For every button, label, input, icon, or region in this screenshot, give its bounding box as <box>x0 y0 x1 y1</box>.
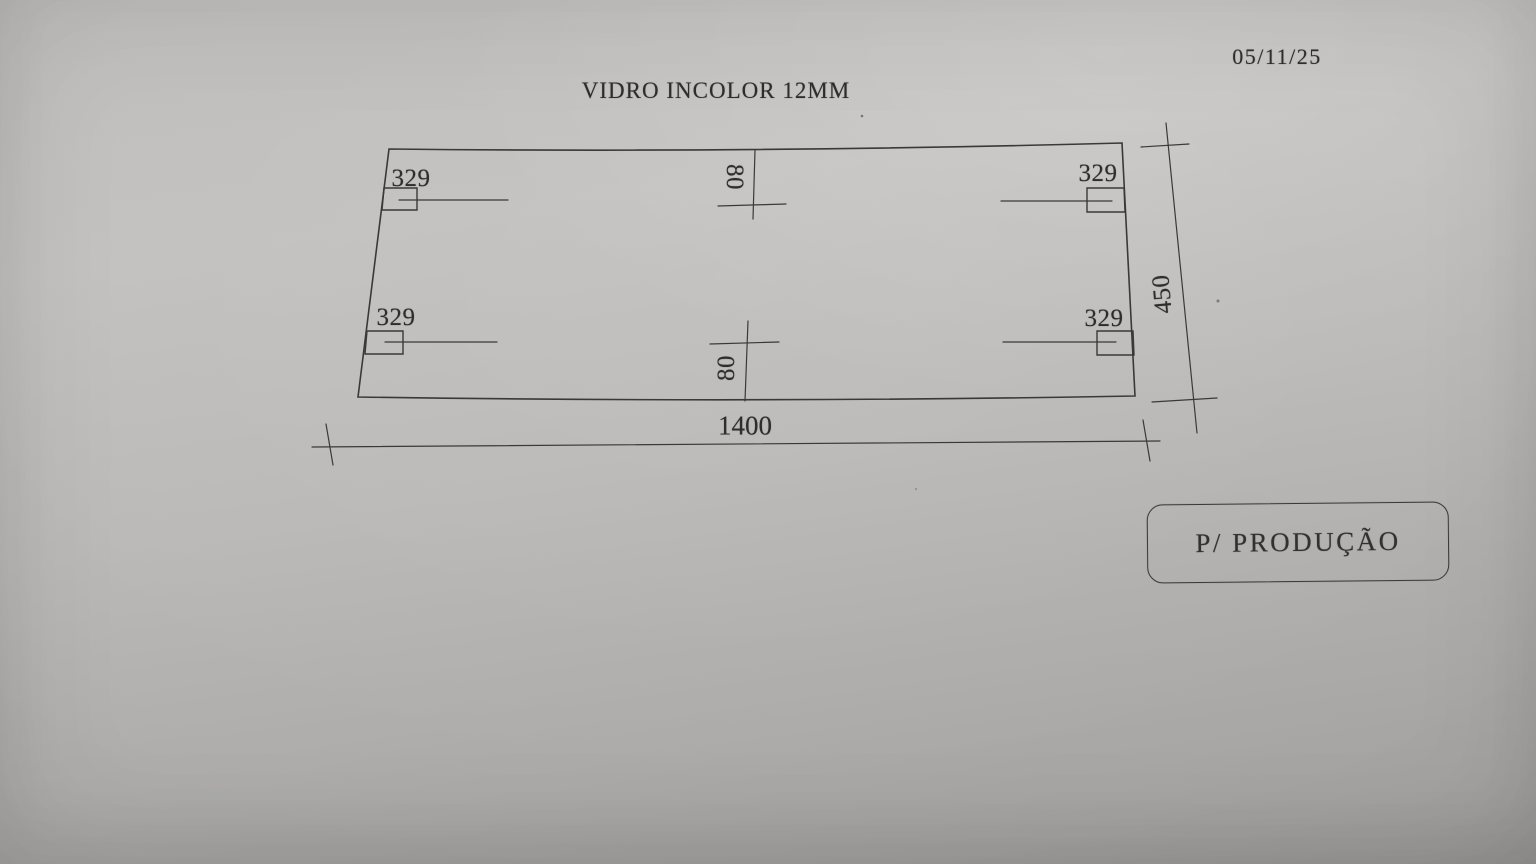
paper-speck <box>915 488 917 490</box>
notch-label-top-right: 329 <box>1079 160 1118 188</box>
notch-label-bottom-left: 329 <box>377 304 416 332</box>
dim-offset-bottom-line <box>745 321 748 401</box>
notch-label-top-left: 329 <box>392 165 431 193</box>
date-label: 05/11/25 <box>1232 44 1321 70</box>
width-dimension-label: 1400 <box>718 411 772 442</box>
dim-height-tick-bottom <box>1152 398 1217 402</box>
notch-top-right <box>1087 188 1125 212</box>
offset-label-bottom: 80 <box>713 355 741 381</box>
notch-label-bottom-right: 329 <box>1085 305 1124 333</box>
production-stamp: P/ PRODUÇÃO <box>1147 501 1450 583</box>
dim-height-tick-top <box>1141 144 1189 147</box>
production-stamp-label: P/ PRODUÇÃO <box>1195 526 1401 559</box>
offset-label-top: 80 <box>720 164 748 190</box>
dim-offset-bottom-tick <box>710 342 779 344</box>
dim-offset-top-line <box>753 150 755 219</box>
height-dimension-label: 450 <box>1147 273 1178 314</box>
drawing-title: VIDRO INCOLOR 12MM <box>582 78 850 104</box>
dim-offset-top-tick <box>718 204 786 206</box>
dim-width-tick-left <box>326 424 333 465</box>
paper-speck <box>1217 300 1220 303</box>
dim-width-line <box>312 441 1160 447</box>
notch-bottom-right <box>1097 331 1134 355</box>
paper-speck <box>861 115 864 118</box>
